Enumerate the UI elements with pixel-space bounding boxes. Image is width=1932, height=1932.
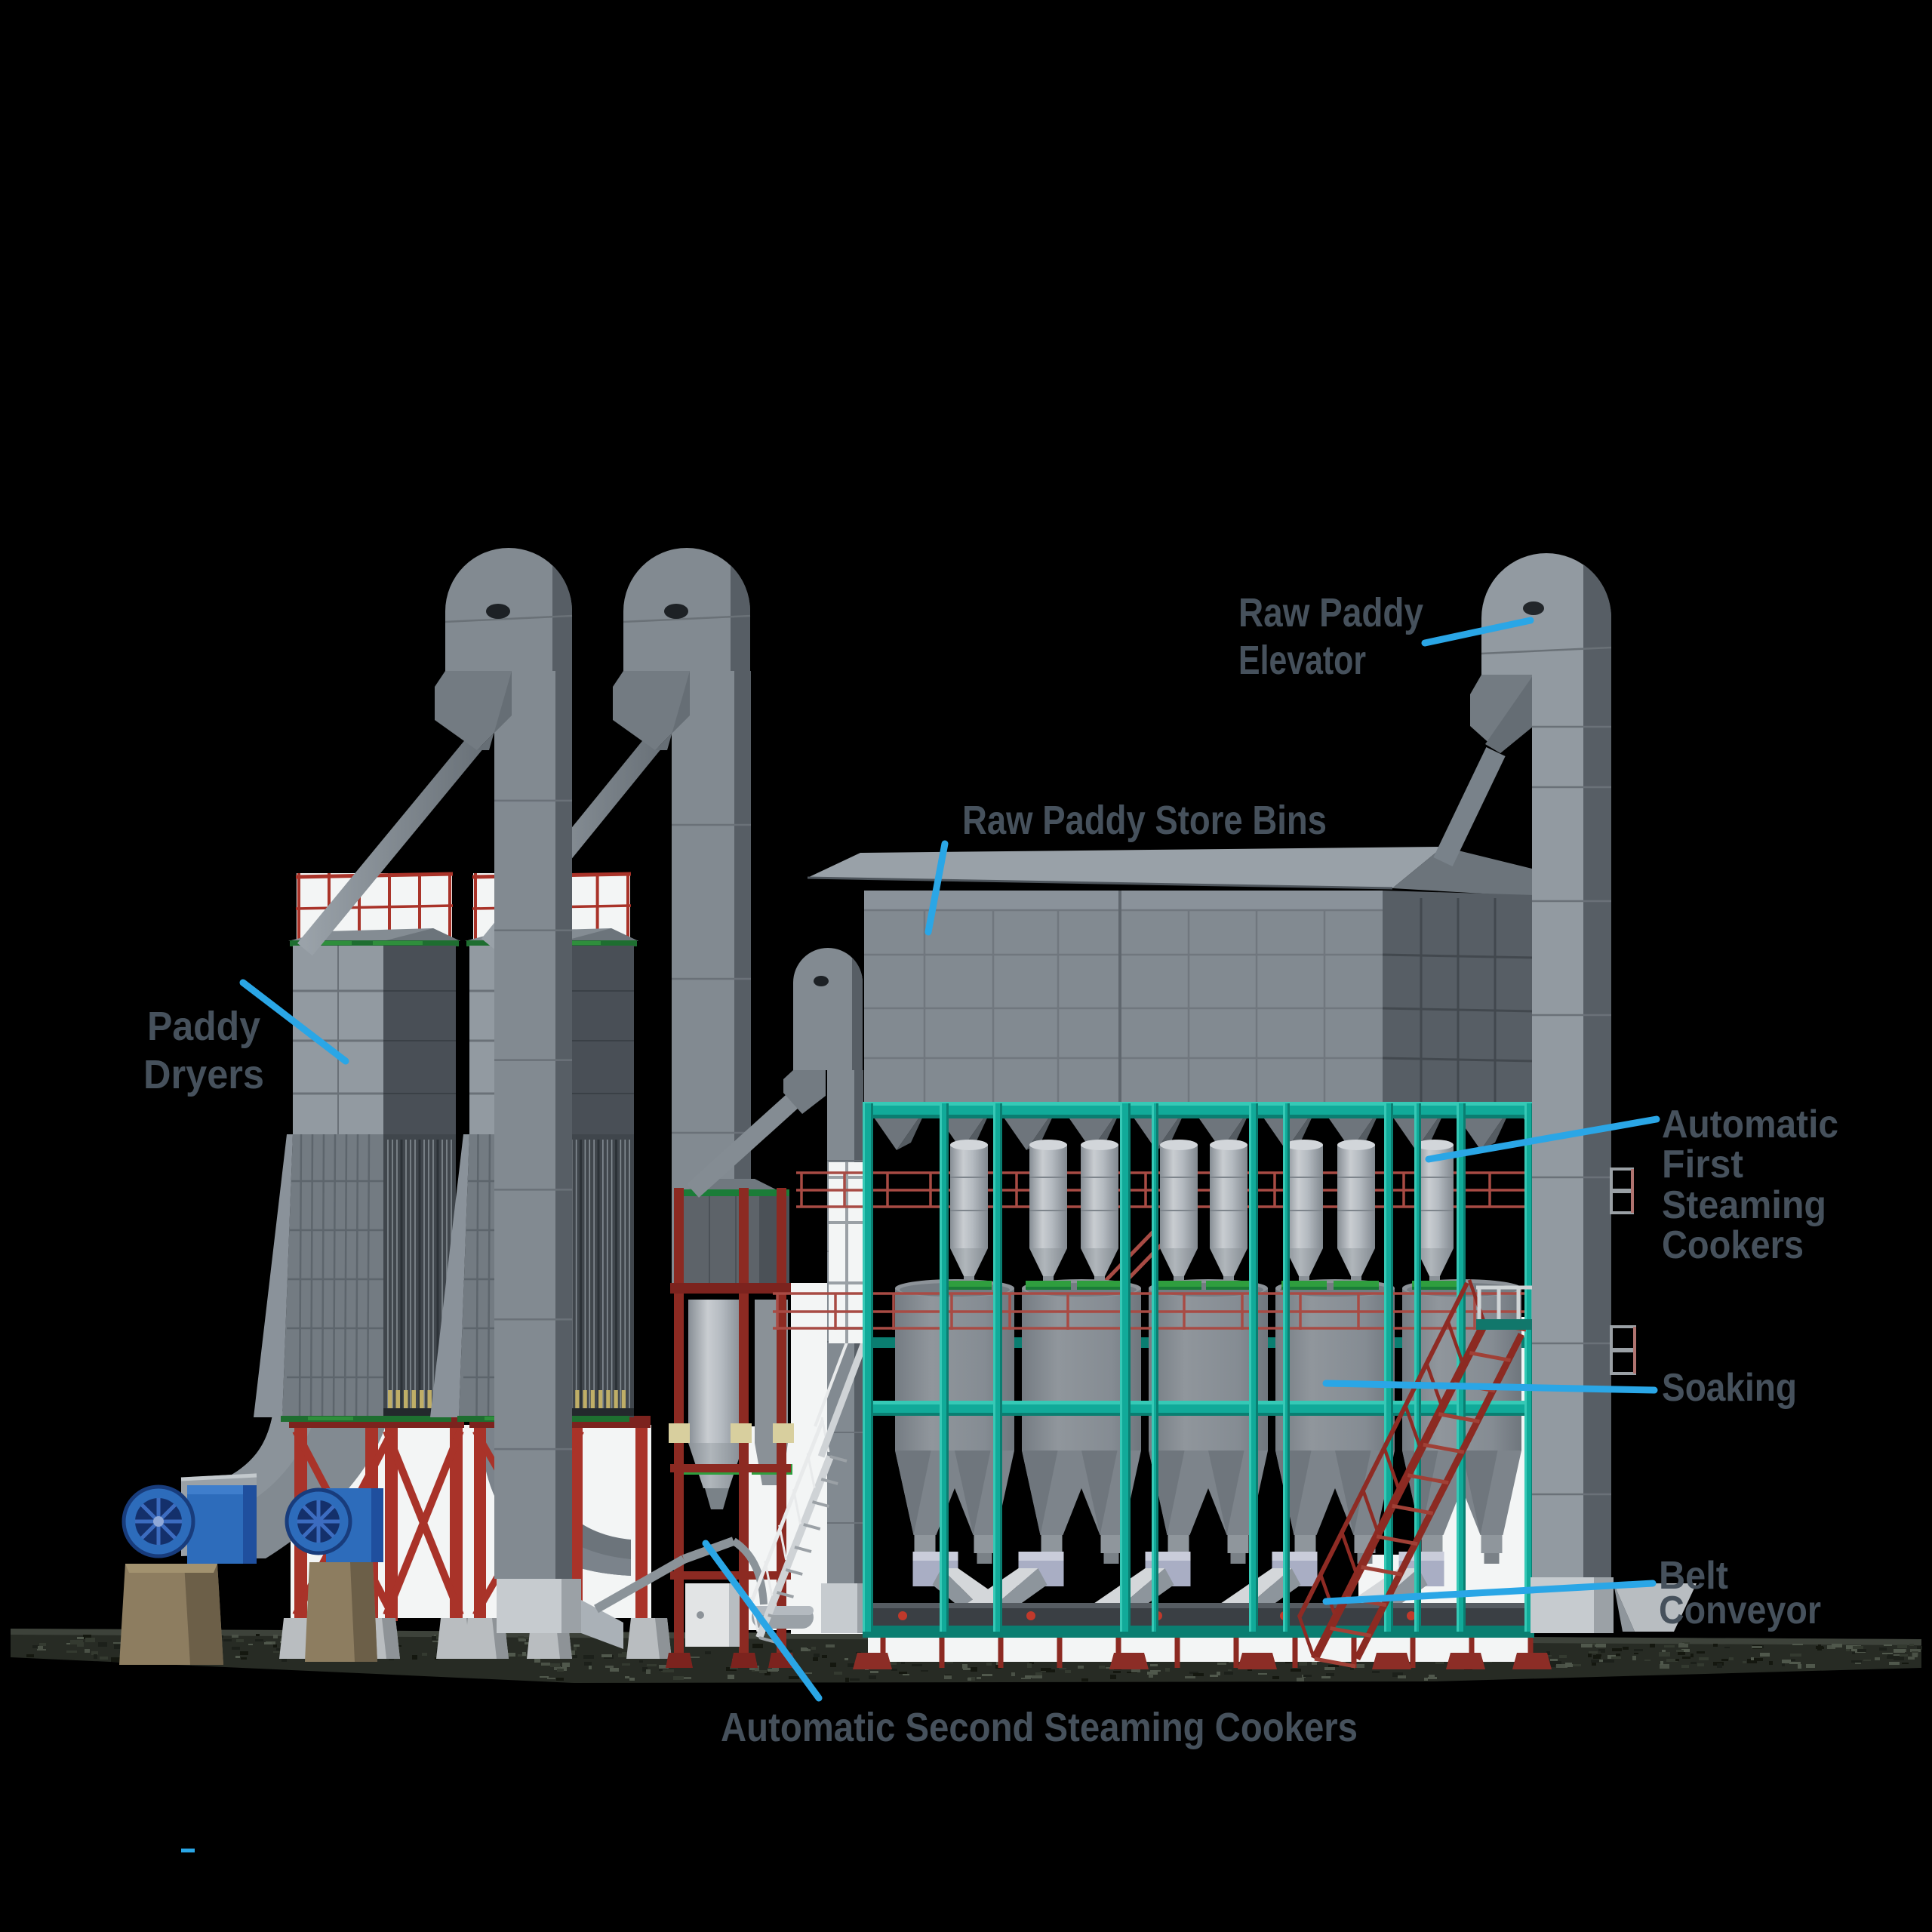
svg-text:Automatic Second Steaming Cook: Automatic Second Steaming Cookers: [721, 1705, 1358, 1750]
svg-text:Conveyor: Conveyor: [1659, 1589, 1821, 1632]
svg-text:First: First: [1662, 1143, 1743, 1186]
svg-text:Soaking: Soaking: [1662, 1366, 1797, 1410]
svg-text:Cookers: Cookers: [1662, 1223, 1804, 1267]
svg-text:Raw Paddy: Raw Paddy: [1238, 590, 1423, 635]
svg-text:Elevator: Elevator: [1238, 638, 1366, 683]
svg-text:Dryers: Dryers: [143, 1052, 264, 1097]
svg-text:Steaming: Steaming: [1662, 1183, 1826, 1227]
svg-text:Paddy: Paddy: [147, 1004, 260, 1049]
svg-text:Automatic: Automatic: [1662, 1103, 1838, 1146]
svg-text:Raw Paddy Store Bins: Raw Paddy Store Bins: [962, 798, 1327, 843]
